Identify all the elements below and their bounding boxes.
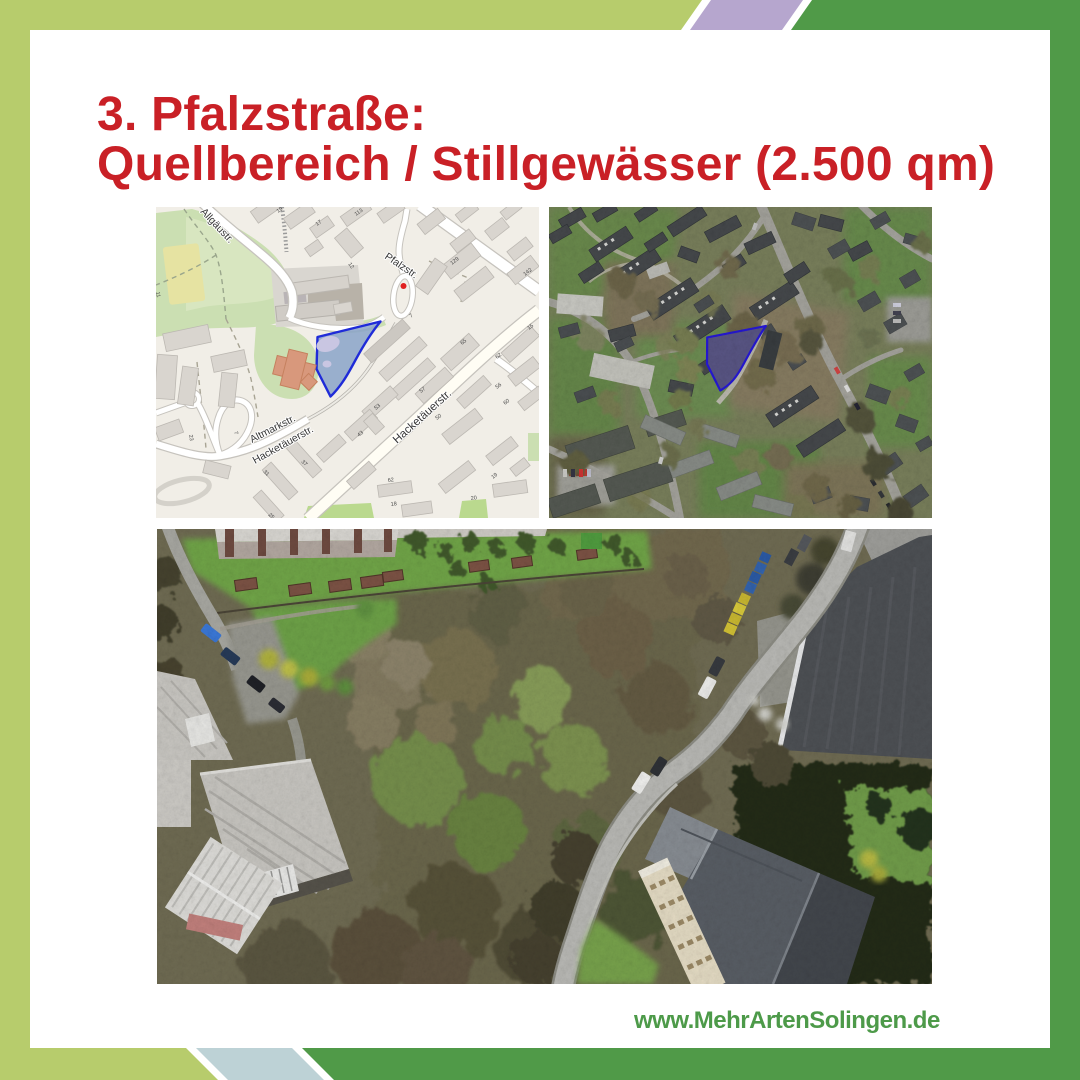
svg-text:11: 11 — [156, 291, 161, 298]
svg-text:23: 23 — [187, 434, 194, 441]
svg-text:62: 62 — [387, 477, 394, 484]
svg-text:20: 20 — [470, 495, 477, 502]
svg-text:18: 18 — [390, 501, 397, 508]
